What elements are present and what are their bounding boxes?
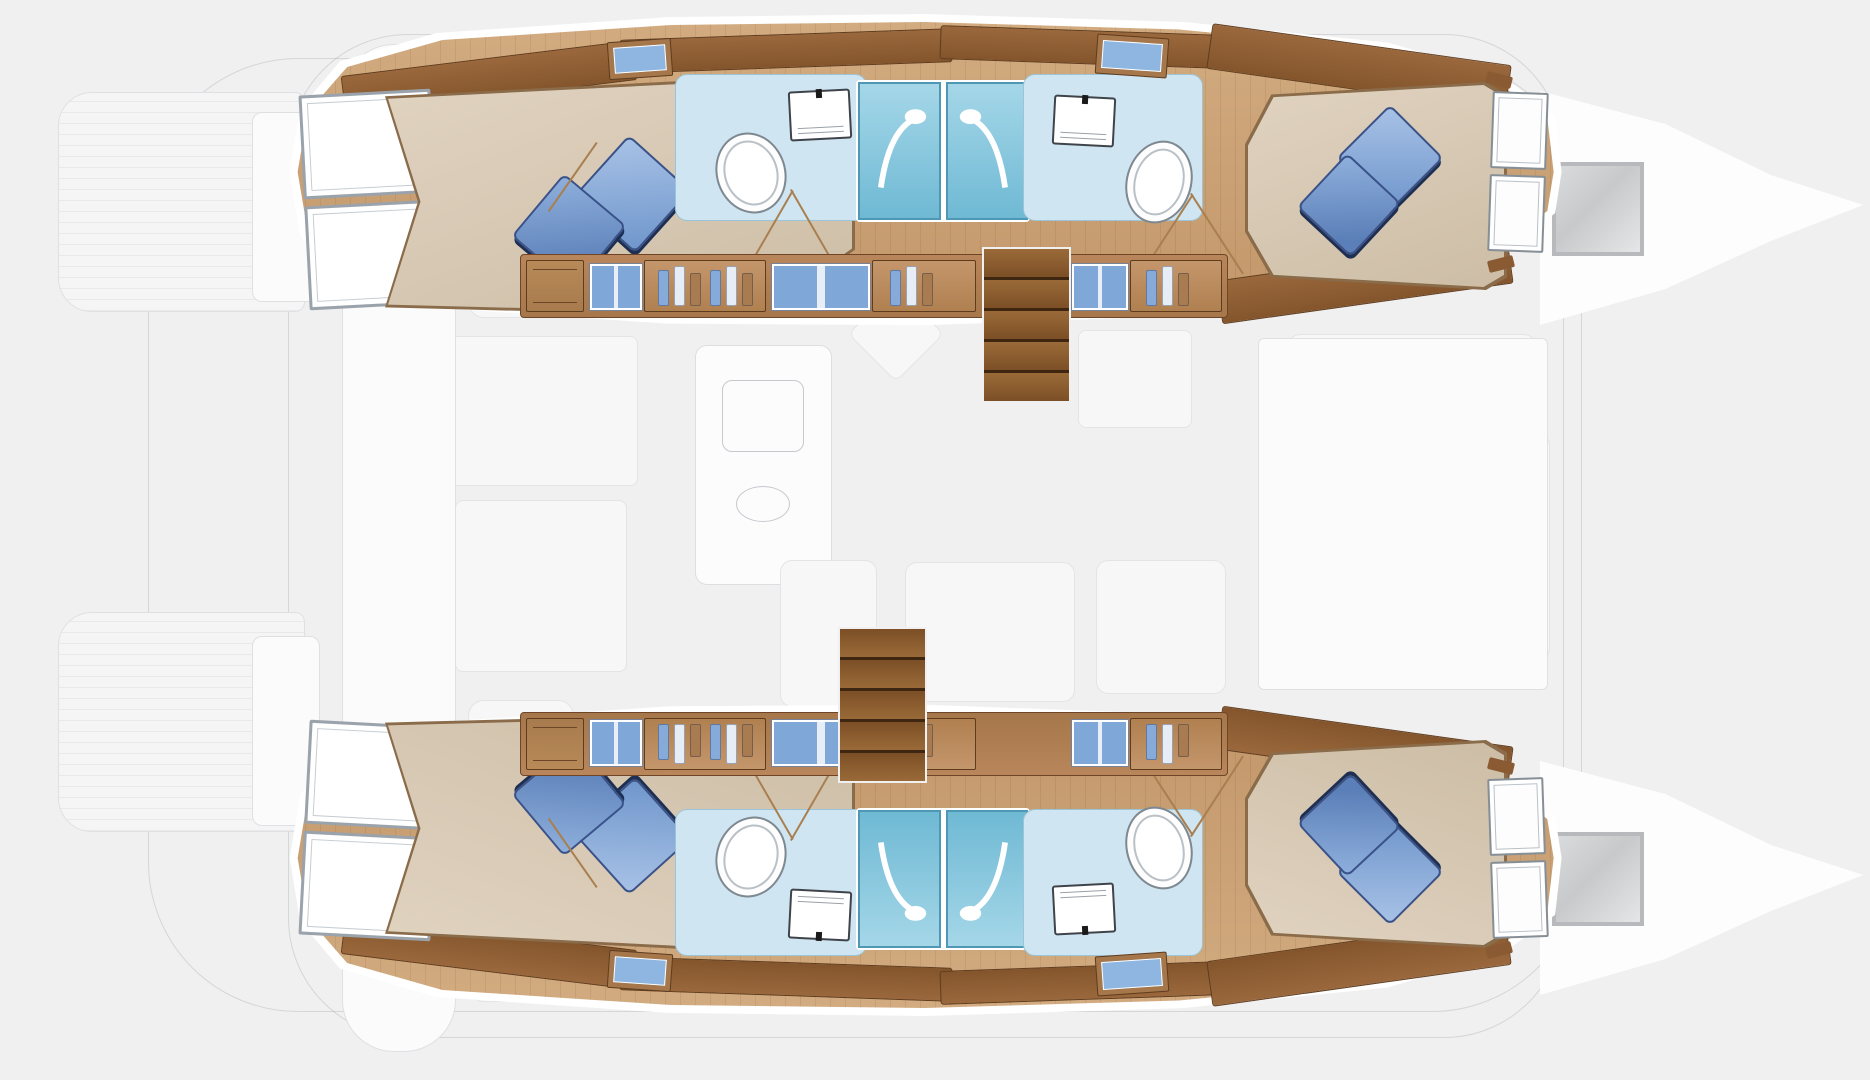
locker-blue-double-door: [772, 264, 870, 310]
companionway-stairs-icon: [982, 247, 1071, 403]
bow-cabin-windows: [1487, 777, 1549, 939]
shower-stall: [858, 82, 941, 220]
shower-stall: [946, 810, 1029, 948]
window-pane: [1487, 174, 1546, 253]
locker-blue-door: [1072, 264, 1128, 310]
starboard-hull: [290, 708, 1560, 1008]
shower-icon: [954, 823, 1020, 936]
drawer-cabinet: [526, 718, 584, 770]
hanging-clothes-icon: [890, 266, 933, 306]
toilet-icon: [788, 88, 853, 141]
toilet-icon: [1052, 882, 1117, 935]
saloon-furniture: [1096, 560, 1226, 694]
shower-icon: [866, 95, 932, 208]
hanging-clothes-icon: [1146, 266, 1189, 306]
shelf-with-blue-panel: [1095, 34, 1170, 79]
locker-blue-door: [1072, 720, 1128, 766]
galley-sink: [722, 380, 804, 452]
window-pane: [1490, 860, 1549, 939]
galley-hob: [736, 486, 790, 522]
bow-cabin-windows: [1487, 91, 1549, 253]
companionway-stairs-icon: [838, 627, 927, 783]
blue-panel: [1101, 40, 1163, 72]
hanging-clothes-icon: [658, 266, 701, 306]
hanging-clothes-icon: [710, 724, 753, 764]
shower-icon: [954, 95, 1020, 208]
drawer-cabinet: [526, 260, 584, 312]
bow-deck-hatch: [1552, 162, 1644, 256]
chart-table: [1078, 330, 1192, 428]
bow-deck-hatch: [1552, 832, 1644, 926]
blue-panel: [613, 956, 667, 986]
shower-stall: [858, 810, 941, 948]
shower-block: [856, 80, 1030, 222]
toilet-icon: [1052, 94, 1117, 147]
hanging-clothes-icon: [710, 266, 753, 306]
window-pane: [1490, 91, 1549, 170]
galley-counter: [455, 500, 627, 672]
shower-block: [856, 808, 1030, 950]
shower-stall: [946, 82, 1029, 220]
shelf-with-blue-panel: [1095, 952, 1170, 997]
hanging-clothes-icon: [1146, 724, 1189, 764]
shelf-with-blue-panel: [607, 38, 673, 80]
blue-panel: [613, 44, 667, 74]
forward-cockpit: [1258, 338, 1548, 690]
port-hull: [290, 22, 1560, 322]
shelf-with-blue-panel: [607, 950, 673, 992]
locker-blue-door: [590, 720, 642, 766]
toilet-icon: [788, 888, 853, 941]
blue-panel: [1101, 958, 1163, 990]
hanging-clothes-icon: [658, 724, 701, 764]
shower-icon: [866, 823, 932, 936]
saloon-furniture: [905, 562, 1075, 702]
locker-blue-door: [590, 264, 642, 310]
catamaran-floorplan: [0, 0, 1870, 1080]
window-pane: [1487, 777, 1546, 856]
